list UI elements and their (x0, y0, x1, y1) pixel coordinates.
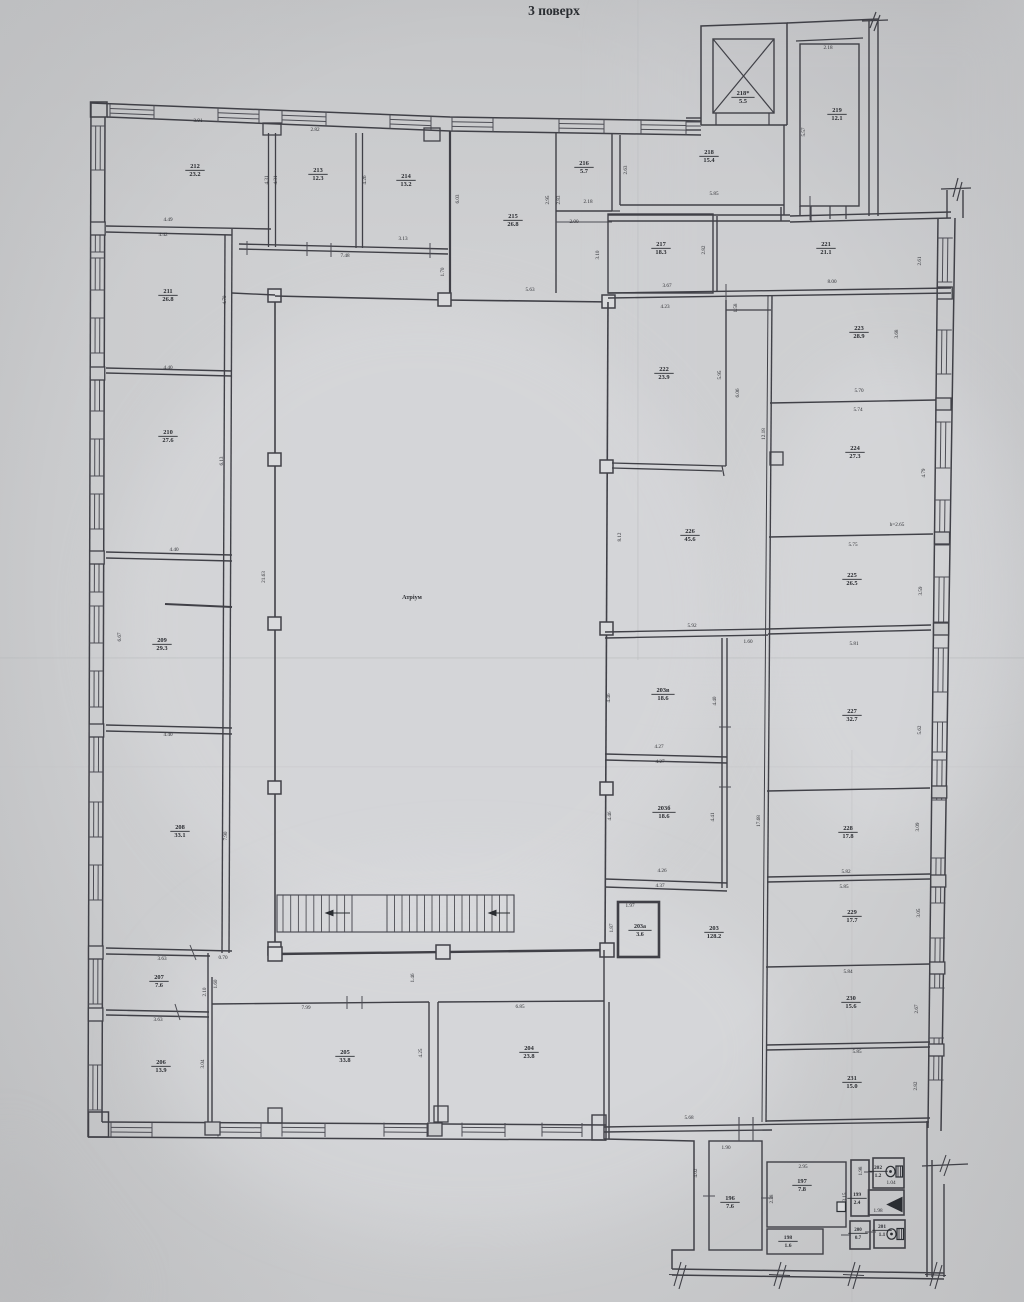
svg-text:4.25: 4.25 (418, 1048, 424, 1057)
svg-text:6.67: 6.67 (117, 632, 123, 641)
svg-text:225: 225 (847, 572, 857, 579)
svg-text:12.1: 12.1 (831, 115, 842, 122)
svg-text:4.27: 4.27 (654, 744, 663, 750)
svg-text:4.46: 4.46 (606, 693, 612, 702)
svg-text:226: 226 (685, 528, 695, 535)
svg-text:7.99: 7.99 (301, 1005, 310, 1011)
svg-text:33.8: 33.8 (339, 1057, 350, 1064)
svg-text:4.41: 4.41 (710, 812, 716, 821)
svg-text:23.9: 23.9 (658, 374, 669, 381)
svg-text:216: 216 (579, 160, 589, 167)
svg-text:227: 227 (847, 708, 857, 715)
svg-text:214: 214 (401, 173, 411, 180)
svg-text:3.67: 3.67 (662, 283, 671, 289)
svg-text:2.18: 2.18 (583, 199, 592, 205)
svg-text:217: 217 (656, 241, 666, 248)
svg-text:3.13: 3.13 (398, 236, 407, 242)
svg-text:5.85: 5.85 (839, 884, 848, 890)
svg-text:7.90: 7.90 (223, 831, 229, 840)
svg-text:4.40: 4.40 (163, 732, 172, 738)
svg-text:197: 197 (797, 1178, 807, 1185)
svg-text:15.0: 15.0 (846, 1083, 857, 1090)
svg-text:219: 219 (832, 107, 842, 114)
svg-text:6.13: 6.13 (219, 456, 225, 465)
svg-text:4.26: 4.26 (362, 175, 368, 184)
svg-text:218*: 218* (737, 90, 750, 97)
svg-text:2.95: 2.95 (545, 195, 551, 204)
svg-text:5.7: 5.7 (580, 168, 589, 175)
svg-text:1.90: 1.90 (721, 1145, 730, 1151)
svg-text:4.26: 4.26 (657, 868, 666, 874)
svg-text:203в: 203в (656, 687, 670, 694)
svg-text:221: 221 (821, 241, 831, 248)
svg-text:27.6: 27.6 (162, 437, 174, 444)
svg-text:2.63: 2.63 (623, 165, 629, 174)
svg-text:3.10: 3.10 (595, 250, 601, 259)
svg-text:203: 203 (709, 925, 719, 932)
svg-text:4.40: 4.40 (163, 365, 172, 371)
svg-text:208: 208 (175, 824, 185, 831)
svg-text:4.23: 4.23 (660, 304, 669, 310)
svg-text:5.70: 5.70 (854, 388, 863, 394)
svg-text:3 поверх: 3 поверх (528, 3, 580, 18)
svg-text:Атріум: Атріум (402, 594, 422, 601)
svg-text:23.2: 23.2 (189, 171, 200, 178)
svg-text:3.63: 3.63 (157, 956, 166, 962)
svg-text:2.10: 2.10 (202, 987, 208, 996)
svg-text:6.85: 6.85 (515, 1004, 524, 1010)
svg-text:7.48: 7.48 (340, 253, 349, 259)
svg-text:203а: 203а (634, 924, 646, 930)
svg-text:23.8: 23.8 (523, 1053, 534, 1060)
svg-text:7.6: 7.6 (726, 1203, 735, 1210)
svg-text:17.8: 17.8 (842, 833, 853, 840)
svg-text:18.3: 18.3 (655, 249, 666, 256)
svg-text:0.70: 0.70 (218, 955, 227, 961)
svg-text:45.6: 45.6 (684, 536, 696, 543)
svg-text:199: 199 (853, 1192, 861, 1198)
svg-text:32.7: 32.7 (846, 716, 858, 723)
svg-text:4.27: 4.27 (655, 759, 664, 765)
svg-text:2.95: 2.95 (798, 1164, 807, 1170)
svg-text:7.8: 7.8 (798, 1186, 806, 1193)
svg-text:2.82: 2.82 (913, 1081, 919, 1090)
svg-text:2.61: 2.61 (917, 256, 923, 265)
svg-text:5.85: 5.85 (709, 191, 718, 197)
svg-text:201: 201 (878, 1224, 886, 1230)
svg-text:21.1: 21.1 (820, 249, 831, 256)
svg-text:4.40: 4.40 (169, 547, 178, 553)
svg-text:2.4: 2.4 (854, 1200, 861, 1206)
svg-text:218: 218 (704, 149, 714, 156)
svg-text:4.31: 4.31 (273, 175, 279, 184)
svg-text:2.00: 2.00 (569, 219, 578, 225)
svg-text:4.70: 4.70 (222, 295, 228, 304)
svg-text:5.68: 5.68 (684, 1115, 693, 1121)
svg-text:229: 229 (847, 909, 857, 916)
svg-text:3.6: 3.6 (636, 932, 644, 938)
svg-text:5.92: 5.92 (687, 623, 696, 629)
svg-text:224: 224 (850, 445, 860, 452)
svg-text:5.81: 5.81 (849, 641, 858, 647)
svg-text:202: 202 (874, 1165, 882, 1171)
svg-text:222: 222 (659, 366, 669, 373)
svg-text:1.98: 1.98 (858, 1166, 864, 1175)
svg-text:12.18: 12.18 (761, 428, 767, 440)
svg-text:3.68: 3.68 (894, 329, 900, 338)
svg-text:1.46: 1.46 (410, 973, 416, 982)
svg-text:205: 205 (340, 1049, 350, 1056)
svg-text:29.3: 29.3 (156, 645, 167, 652)
svg-text:15.6: 15.6 (845, 1003, 857, 1010)
svg-text:231: 231 (847, 1075, 857, 1082)
svg-text:4.40: 4.40 (712, 696, 718, 705)
svg-text:211: 211 (163, 288, 172, 295)
svg-text:228: 228 (843, 825, 853, 832)
svg-text:4.31: 4.31 (264, 175, 270, 184)
svg-text:13.9: 13.9 (155, 1067, 166, 1074)
svg-text:4.37: 4.37 (655, 883, 664, 889)
svg-text:4.49: 4.49 (163, 217, 172, 223)
svg-text:3.05: 3.05 (916, 908, 922, 917)
svg-text:5.75: 5.75 (848, 542, 857, 548)
svg-text:4.46: 4.46 (607, 811, 613, 820)
svg-text:27.3: 27.3 (849, 453, 860, 460)
svg-text:5.82: 5.82 (841, 869, 850, 875)
svg-text:213: 213 (313, 167, 323, 174)
svg-text:5.84: 5.84 (843, 969, 852, 975)
svg-text:21.63: 21.63 (261, 571, 267, 583)
svg-text:12.3: 12.3 (312, 175, 323, 182)
svg-text:2.67: 2.67 (914, 1004, 920, 1013)
svg-text:2.83: 2.83 (556, 195, 562, 204)
svg-text:5.63: 5.63 (525, 287, 534, 293)
svg-text:1.60: 1.60 (743, 639, 752, 645)
svg-text:17.7: 17.7 (846, 917, 858, 924)
svg-text:5.62: 5.62 (917, 725, 923, 734)
svg-text:5.85: 5.85 (852, 1049, 861, 1055)
svg-text:1.58: 1.58 (733, 303, 739, 312)
svg-text:230: 230 (846, 995, 856, 1002)
svg-text:26.8: 26.8 (162, 296, 173, 303)
svg-text:203б: 203б (658, 805, 671, 812)
svg-text:h=2.65: h=2.65 (890, 522, 905, 528)
svg-text:198: 198 (784, 1235, 793, 1241)
svg-text:18.6: 18.6 (657, 695, 669, 702)
svg-text:13.2: 13.2 (400, 181, 411, 188)
svg-text:17.68: 17.68 (756, 815, 762, 827)
svg-text:3.04: 3.04 (200, 1059, 206, 1068)
svg-text:212: 212 (190, 163, 200, 170)
svg-text:209: 209 (157, 637, 167, 644)
svg-text:4.79: 4.79 (921, 468, 927, 477)
svg-text:1.6: 1.6 (785, 1243, 792, 1249)
svg-text:3.91: 3.91 (193, 118, 202, 124)
svg-text:0.7: 0.7 (855, 1236, 862, 1241)
svg-text:204: 204 (524, 1045, 534, 1052)
svg-text:6.03: 6.03 (455, 194, 461, 203)
svg-text:210: 210 (163, 429, 173, 436)
svg-text:8.12: 8.12 (617, 532, 623, 541)
svg-text:196: 196 (725, 1195, 735, 1202)
svg-text:1.2: 1.2 (875, 1173, 882, 1179)
svg-text:5.74: 5.74 (853, 407, 862, 413)
svg-text:1.70: 1.70 (440, 267, 446, 276)
svg-text:2.82: 2.82 (701, 245, 707, 254)
svg-text:18.6: 18.6 (658, 813, 670, 820)
svg-text:1.98: 1.98 (873, 1208, 882, 1214)
svg-text:4.02: 4.02 (693, 1168, 699, 1177)
svg-text:6.06: 6.06 (735, 388, 741, 397)
svg-text:223: 223 (854, 325, 864, 332)
svg-text:33.1: 33.1 (174, 832, 185, 839)
svg-text:1.1: 1.1 (879, 1232, 886, 1238)
svg-text:128.2: 128.2 (707, 933, 721, 940)
svg-text:1.04: 1.04 (886, 1180, 895, 1186)
svg-text:200: 200 (854, 1228, 862, 1233)
svg-text:15.4: 15.4 (703, 157, 715, 164)
svg-text:5.95: 5.95 (717, 370, 723, 379)
svg-text:26.5: 26.5 (846, 580, 857, 587)
svg-text:8.00: 8.00 (827, 279, 836, 285)
svg-text:3.09: 3.09 (915, 822, 921, 831)
svg-text:7.6: 7.6 (155, 982, 164, 989)
svg-text:5.57: 5.57 (801, 127, 807, 136)
svg-text:4.42: 4.42 (158, 232, 167, 238)
svg-text:206: 206 (156, 1059, 166, 1066)
svg-text:1.87: 1.87 (609, 923, 615, 932)
svg-text:2.82: 2.82 (310, 127, 319, 133)
svg-text:2.18: 2.18 (823, 45, 832, 51)
svg-text:2.38: 2.38 (769, 1194, 775, 1203)
svg-text:5.5: 5.5 (739, 98, 747, 105)
svg-text:3.15: 3.15 (842, 1192, 848, 1201)
svg-text:207: 207 (154, 974, 164, 981)
svg-text:28.9: 28.9 (853, 333, 864, 340)
svg-text:26.8: 26.8 (507, 221, 518, 228)
svg-text:3.59: 3.59 (918, 586, 924, 595)
svg-text:3.63: 3.63 (153, 1017, 162, 1023)
svg-text:215: 215 (508, 213, 518, 220)
svg-text:1.60: 1.60 (213, 979, 219, 988)
svg-text:1.97: 1.97 (625, 903, 634, 909)
